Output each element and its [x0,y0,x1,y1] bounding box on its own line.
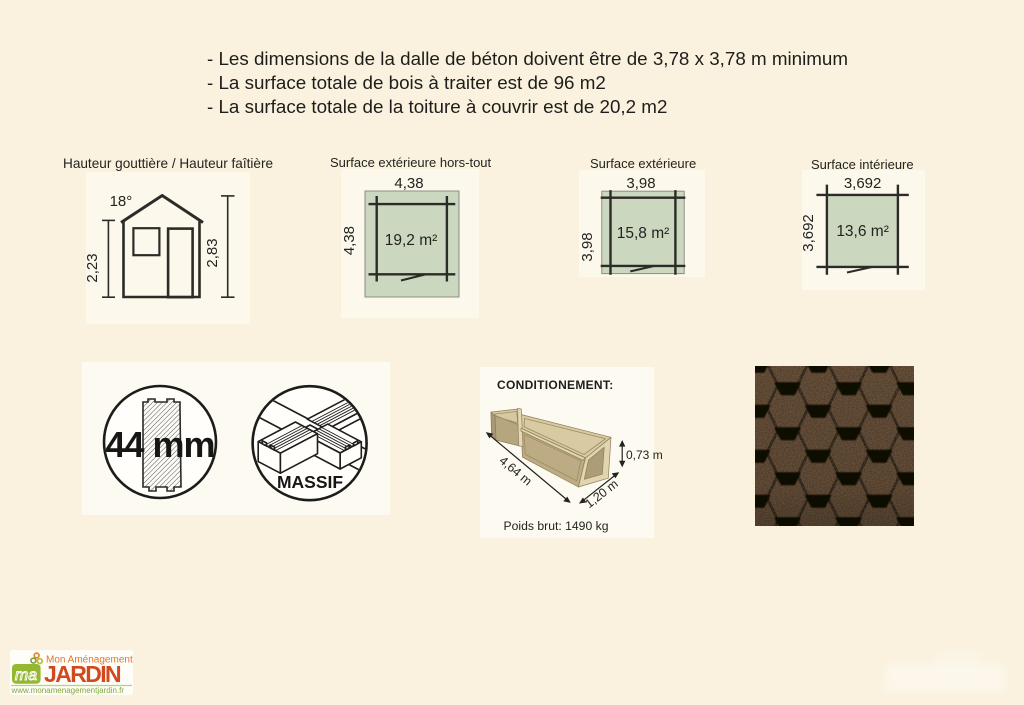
svg-text:4,38: 4,38 [341,226,358,255]
svg-text:3,98: 3,98 [626,175,655,192]
svg-text:Poids brut: 1490 kg: Poids brut: 1490 kg [503,519,608,533]
svg-text:2,23: 2,23 [86,253,101,282]
svg-text:3,692: 3,692 [844,175,882,192]
svg-text:19,2 m²: 19,2 m² [385,232,438,249]
svg-text:3,98: 3,98 [579,232,596,261]
svg-text:2,83: 2,83 [204,238,221,267]
svg-text:15,8 m²: 15,8 m² [617,225,670,242]
svg-text:MASSIF: MASSIF [277,472,343,492]
svg-text:4,38: 4,38 [394,175,423,192]
svg-text:18°: 18° [110,193,133,210]
svg-text:JARDIN: JARDIN [44,661,121,687]
svg-text:44 mm: 44 mm [105,424,214,465]
svg-text:ma: ma [15,667,37,684]
svg-text:CONDITIONEMENT:: CONDITIONEMENT: [497,378,614,392]
svg-text:13,6 m²: 13,6 m² [836,223,889,240]
svg-text:www.monamenagementjardin.fr: www.monamenagementjardin.fr [11,686,125,695]
svg-text:3,692: 3,692 [802,214,817,252]
